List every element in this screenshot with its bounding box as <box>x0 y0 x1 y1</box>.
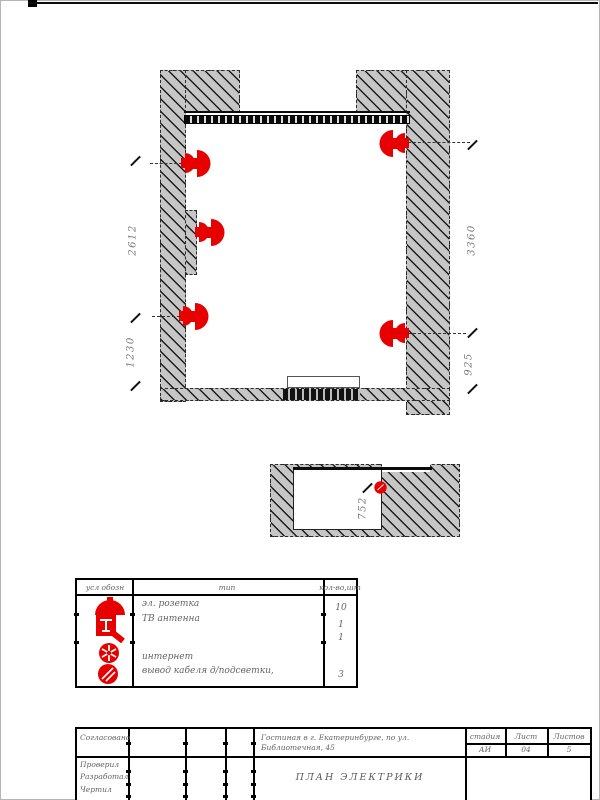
stage-value: АИ <box>479 745 491 754</box>
socket-pair-icon <box>377 130 409 157</box>
approved-label: Согласовано <box>80 733 130 742</box>
table-nub <box>223 742 228 745</box>
drawing-title: ПЛАН ЭЛЕКТРИКИ <box>296 772 425 783</box>
wall-right <box>406 70 450 415</box>
drawing-sheet: 2612 1230 3360 925 752 усл обозн тип кол… <box>0 0 600 800</box>
wall-left <box>160 70 186 402</box>
legend-col-line <box>323 580 325 686</box>
dimension-right-bottom: 925 <box>464 352 475 376</box>
socket-pair-icon <box>195 219 227 246</box>
table-nub <box>251 783 256 786</box>
table-nub <box>223 770 228 773</box>
leader-line <box>150 163 182 164</box>
table-nub <box>74 641 79 644</box>
internet-icon <box>98 642 120 664</box>
title-block: Согласовано Проверил Разработал Чертил Г… <box>75 727 592 800</box>
cable-outlet-icon <box>97 663 119 685</box>
dim-tick <box>467 328 478 339</box>
sheet-label: Лист <box>515 732 537 741</box>
window-bar <box>184 115 410 124</box>
socket-pair-icon <box>179 303 211 330</box>
dimension-left-bottom: 1230 <box>126 336 137 367</box>
tb-vline <box>253 729 255 800</box>
legend-row-type: эл. розетка <box>142 599 199 609</box>
legend-row-qty: 1 <box>338 620 344 630</box>
threshold <box>287 376 360 388</box>
table-nub <box>321 613 326 616</box>
legend-header-symbol: усл обозн <box>86 583 124 592</box>
table-nub <box>183 742 188 745</box>
title-block-divider <box>77 756 590 758</box>
developed-label: Разработал <box>80 772 128 781</box>
project-line1: Гостиная в г. Екатеринбурге, по ул. <box>261 733 409 742</box>
checked-label: Проверил <box>80 760 119 769</box>
detail-interior <box>293 469 382 530</box>
legend-row-qty: 1 <box>338 633 344 643</box>
legend-header-qty: кол-во,шт <box>319 583 361 592</box>
wall-bottom-opening <box>283 389 360 400</box>
stage-label: стадия <box>470 732 500 741</box>
leader-line <box>152 316 180 317</box>
project-line2: Библиотечная, 45 <box>261 743 335 752</box>
leader-line <box>408 142 470 143</box>
legend-row-type: вывод кабеля д/подсветки, <box>142 666 274 676</box>
table-nub <box>126 795 131 798</box>
table-nub <box>126 742 131 745</box>
detail-top-line <box>293 467 432 470</box>
tb-vline <box>185 729 187 800</box>
sheet-value: 04 <box>521 745 531 754</box>
table-nub <box>223 795 228 798</box>
legend-row-type: интернет <box>142 652 193 662</box>
sheets-value: 5 <box>567 745 572 754</box>
legend-header-line <box>77 594 356 596</box>
table-nub <box>321 641 326 644</box>
frame-top-line <box>28 2 598 4</box>
table-nub <box>130 641 135 644</box>
drawn-label: Чертил <box>80 785 112 794</box>
legend-row-type: ТВ антенна <box>142 614 200 624</box>
dimension-left-top: 2612 <box>128 224 139 255</box>
tb-vline <box>465 729 467 800</box>
table-nub <box>251 742 256 745</box>
lintel-line <box>184 111 410 113</box>
dim-tick <box>130 313 141 324</box>
leader-line <box>408 333 466 334</box>
sheets-label: Листов <box>553 732 584 741</box>
legend-header-type: тип <box>219 583 236 592</box>
table-nub <box>183 770 188 773</box>
dim-tick <box>130 381 141 392</box>
dim-tick <box>467 384 478 395</box>
table-nub <box>183 783 188 786</box>
table-nub <box>223 783 228 786</box>
table-nub <box>251 770 256 773</box>
table-nub <box>251 795 256 798</box>
table-nub <box>74 613 79 616</box>
legend-row-qty: 3 <box>338 670 344 680</box>
tv-antenna-icon <box>95 613 125 643</box>
legend-col-line <box>132 580 134 686</box>
dimension-right-top: 3360 <box>467 224 478 255</box>
legend-row-qty: 10 <box>335 603 346 613</box>
cable-outlet-plan-icon <box>374 481 387 494</box>
socket-pair-icon <box>377 320 409 347</box>
table-nub <box>130 613 135 616</box>
tb-vline <box>225 729 227 800</box>
dim-tick <box>130 156 141 167</box>
table-nub <box>183 795 188 798</box>
legend-table: усл обозн тип кол-во,шт эл. розетка 10 Т… <box>75 578 358 688</box>
dimension-detail: 752 <box>358 496 369 520</box>
table-nub <box>126 783 131 786</box>
socket-pair-icon <box>181 150 213 177</box>
